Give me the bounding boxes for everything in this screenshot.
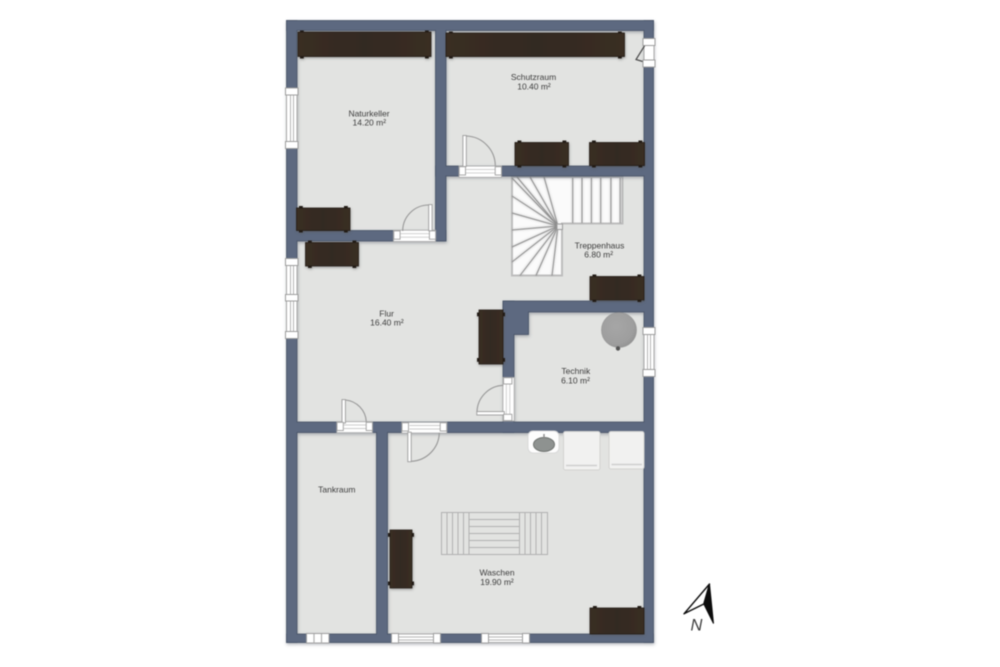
svg-text:6.80 m²: 6.80 m² [584,250,613,260]
svg-text:6.10 m²: 6.10 m² [561,375,590,385]
svg-text:10.40 m²: 10.40 m² [517,82,551,92]
svg-text:19.90 m²: 19.90 m² [480,577,514,587]
svg-text:16.40 m²: 16.40 m² [370,318,404,328]
svg-text:14.20 m²: 14.20 m² [353,117,387,127]
svg-text:Schutzraum: Schutzraum [511,72,556,82]
svg-text:Tankraum: Tankraum [318,485,355,495]
svg-text:N: N [691,617,703,635]
